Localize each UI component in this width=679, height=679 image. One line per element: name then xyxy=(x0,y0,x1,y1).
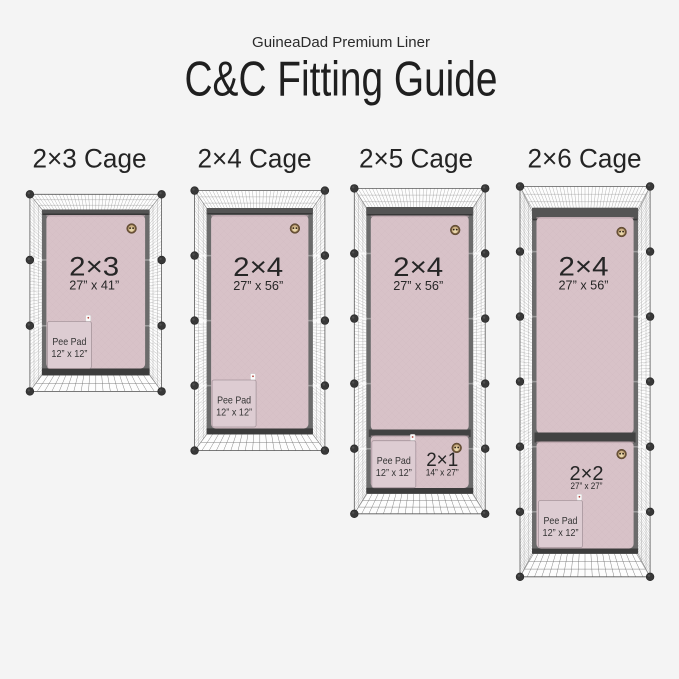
svg-text:12” x 12”: 12” x 12” xyxy=(51,348,87,360)
svg-text:C&C Fitting Guide: C&C Fitting Guide xyxy=(185,53,498,107)
svg-text:GuineaDad Premium Liner: GuineaDad Premium Liner xyxy=(252,34,430,51)
svg-text:27” x 56”: 27” x 56” xyxy=(393,278,443,293)
svg-text:12” x 12”: 12” x 12” xyxy=(216,407,252,419)
svg-text:12” x 12”: 12” x 12” xyxy=(376,467,412,479)
svg-text:Pee Pad: Pee Pad xyxy=(377,455,411,467)
svg-text:2×6 Cage: 2×6 Cage xyxy=(528,144,642,174)
svg-text:Pee Pad: Pee Pad xyxy=(217,395,251,407)
svg-text:27” x 56”: 27” x 56” xyxy=(233,278,283,293)
svg-text:2×3 Cage: 2×3 Cage xyxy=(33,144,147,174)
svg-text:27” x 27”: 27” x 27” xyxy=(571,481,603,491)
svg-text:27” x 41”: 27” x 41” xyxy=(69,278,119,293)
svg-text:2×5 Cage: 2×5 Cage xyxy=(359,144,473,174)
svg-text:27” x 56”: 27” x 56” xyxy=(559,278,609,293)
svg-text:14” x 27”: 14” x 27” xyxy=(426,468,459,478)
svg-text:2×4 Cage: 2×4 Cage xyxy=(198,144,312,174)
svg-text:Pee Pad: Pee Pad xyxy=(52,336,86,348)
svg-text:Pee Pad: Pee Pad xyxy=(544,515,578,527)
svg-text:12” x 12”: 12” x 12” xyxy=(543,527,579,539)
